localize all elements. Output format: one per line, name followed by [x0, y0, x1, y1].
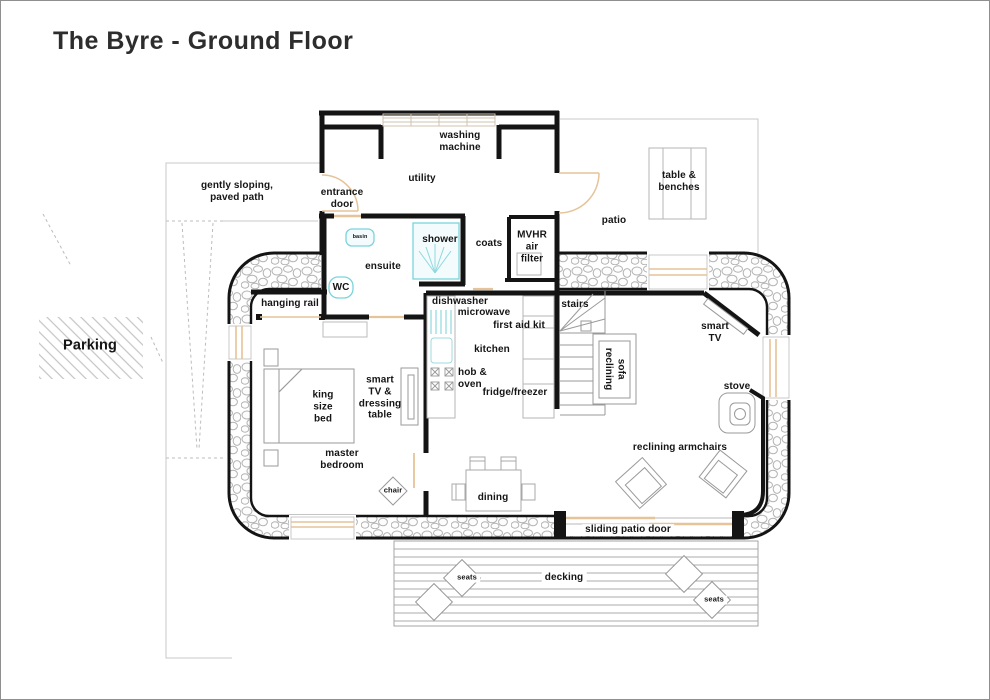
label-entrance-door: entrance door	[321, 187, 364, 211]
page-title: The Byre - Ground Floor	[53, 27, 353, 56]
armchair-right	[699, 450, 747, 498]
label-seats-right: seats	[701, 596, 727, 605]
label-armchairs: reclining armchairs	[633, 442, 727, 454]
label-decking: decking	[542, 572, 587, 584]
dressing-table	[401, 368, 418, 425]
label-coats: coats	[476, 238, 503, 250]
kitchen-sink	[431, 338, 452, 363]
label-chair: chair	[384, 487, 402, 496]
label-tv-dressing: smart TV & dressing table	[359, 374, 401, 421]
bedside-table-top	[264, 349, 278, 366]
label-smart-tv: smart TV	[701, 321, 729, 345]
king-size-bed	[264, 369, 354, 443]
floor-plan-page: The Byre - Ground Floor gently sloping, …	[0, 0, 990, 700]
label-mvhr: MVHR air filter	[517, 229, 547, 264]
label-patio: patio	[602, 215, 626, 227]
label-first-aid: first aid kit	[493, 320, 545, 332]
label-kitchen: kitchen	[474, 344, 510, 356]
label-microwave: microwave	[458, 307, 511, 319]
label-parking: Parking	[63, 337, 117, 354]
label-table-benches: table & benches	[658, 170, 699, 194]
bedside-table-bottom	[264, 450, 278, 466]
label-reclining-sofa: reclining sofa	[602, 348, 627, 391]
armchair-left	[616, 458, 667, 509]
label-dining: dining	[478, 492, 509, 504]
label-washing-machine: washing machine	[439, 130, 480, 154]
label-paved-path: gently sloping, paved path	[201, 180, 273, 204]
washing-machine-counter	[383, 114, 495, 126]
label-master-bedroom: master bedroom	[320, 448, 363, 472]
label-utility: utility	[408, 173, 435, 185]
label-seats-left: seats	[454, 574, 480, 583]
shower-stall	[413, 223, 459, 279]
label-shower: shower	[422, 234, 458, 246]
stove	[719, 393, 755, 433]
label-fridge: fridge/freezer	[483, 387, 548, 399]
label-basin: basin	[353, 234, 368, 240]
label-wc: WC	[333, 282, 350, 294]
label-king-bed: king size bed	[313, 389, 334, 424]
label-ensuite: ensuite	[365, 261, 401, 273]
dresser-shelf	[323, 322, 367, 337]
label-sliding-door: sliding patio door	[582, 524, 674, 536]
label-stairs: stairs	[561, 299, 588, 311]
label-stove: stove	[724, 381, 751, 393]
patio-door-swing	[559, 173, 599, 213]
label-hanging-rail: hanging rail	[261, 298, 319, 310]
